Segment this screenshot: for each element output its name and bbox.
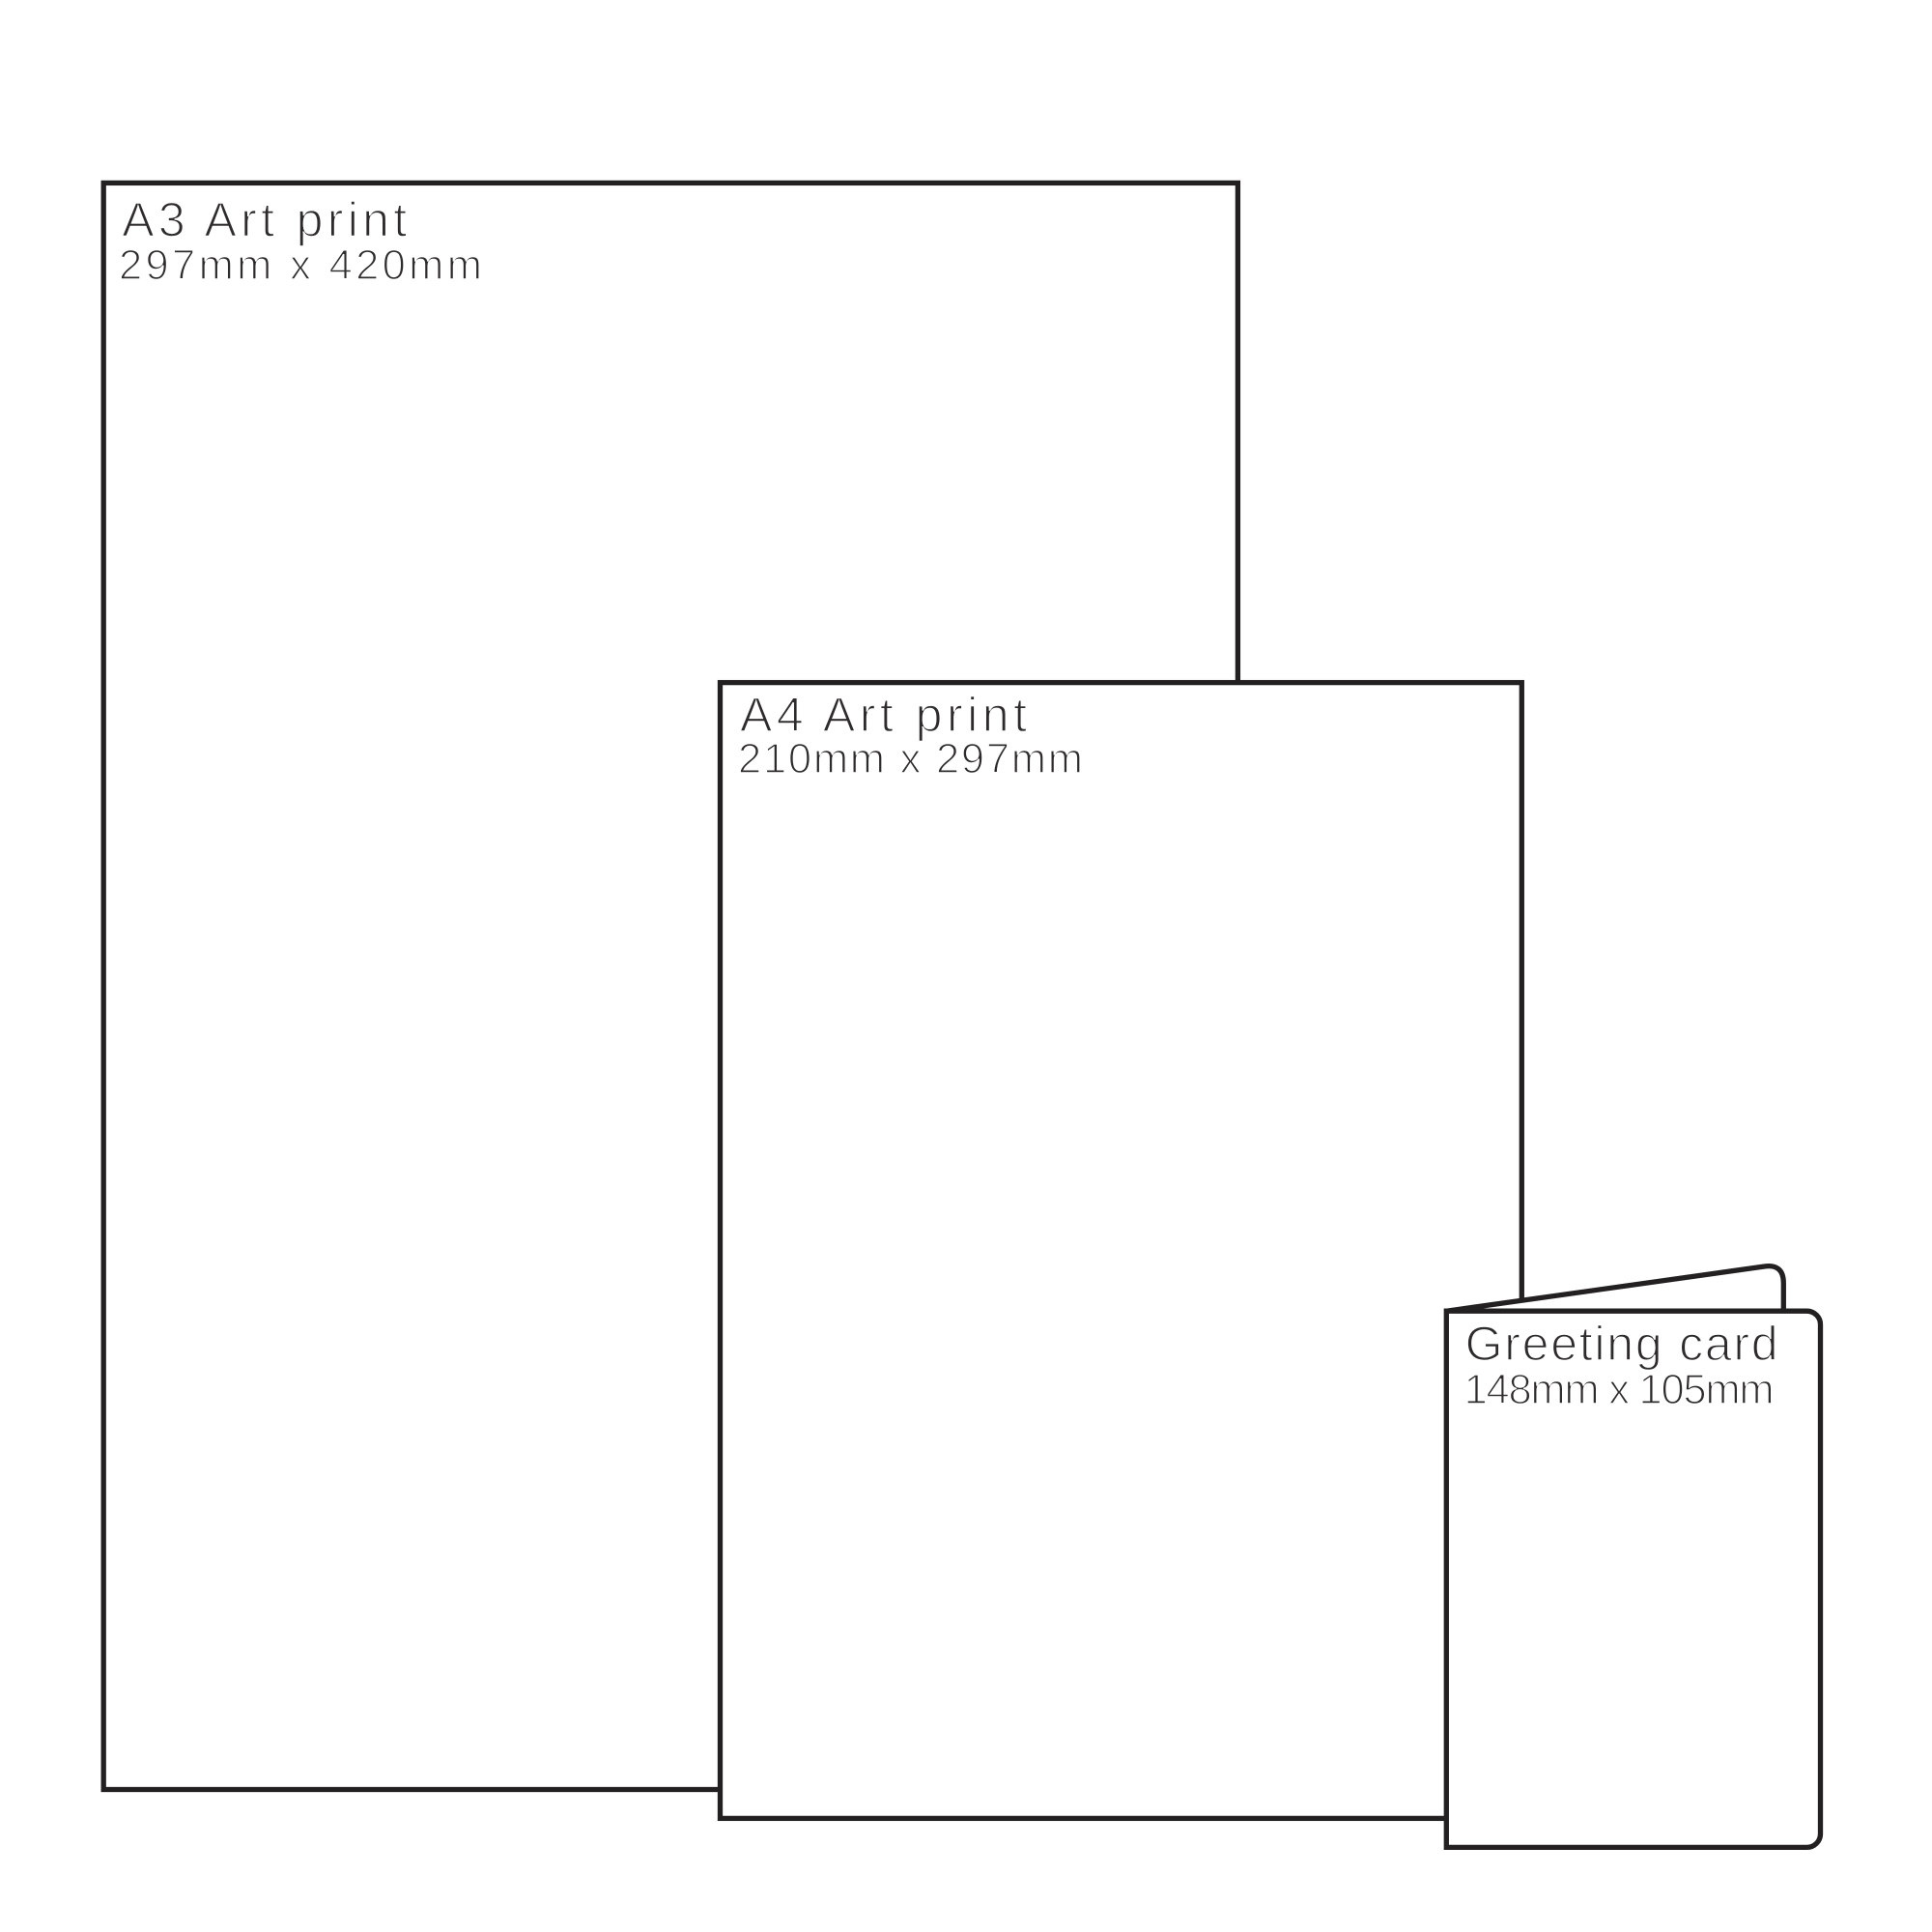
svg-text:Greeting card: Greeting card — [1465, 1317, 1778, 1371]
svg-text:210mm x 297mm: 210mm x 297mm — [738, 736, 1083, 782]
svg-text:297mm x 420mm: 297mm x 420mm — [119, 242, 482, 289]
svg-text:A4 Art print: A4 Art print — [740, 688, 1027, 742]
svg-text:A3 Art print: A3 Art print — [122, 193, 407, 247]
svg-text:148mm x 105mm: 148mm x 105mm — [1464, 1367, 1775, 1413]
